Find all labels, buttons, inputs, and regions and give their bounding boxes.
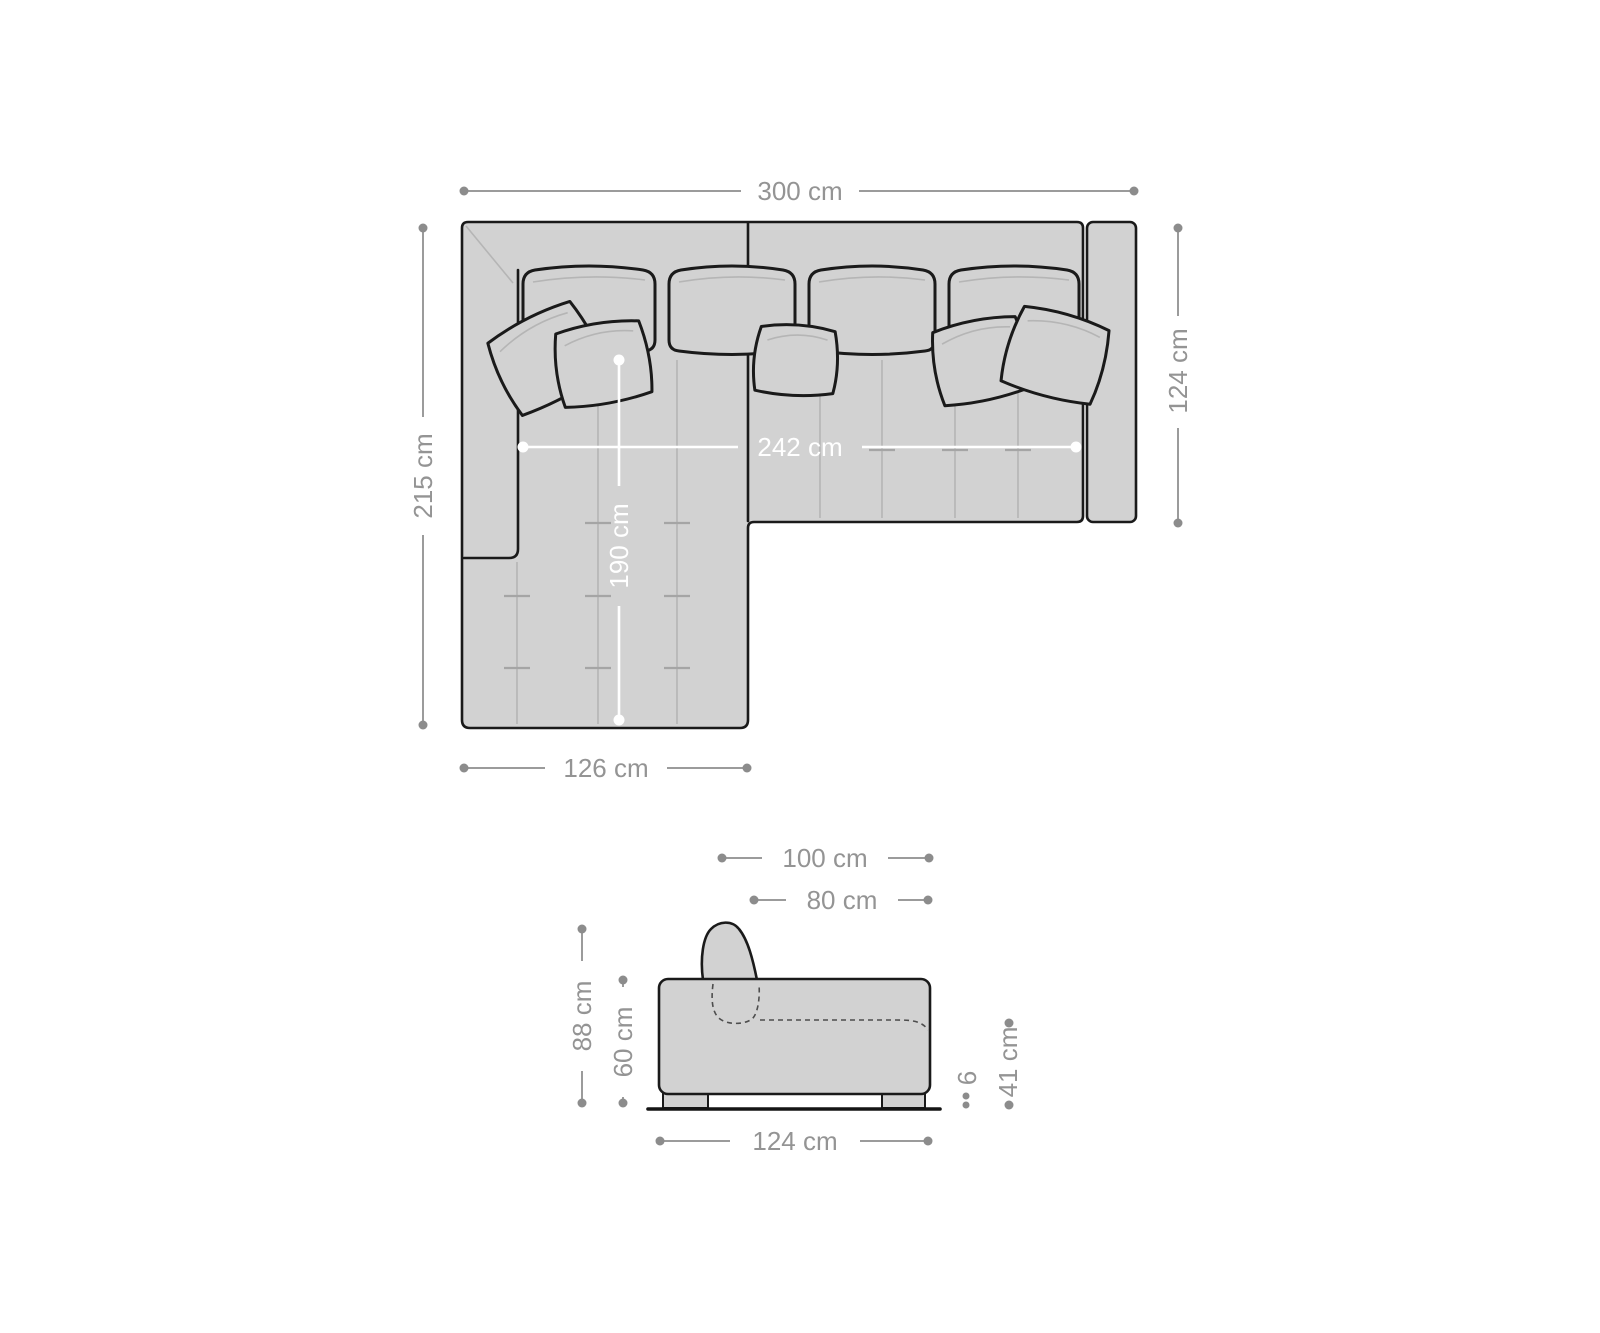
total-height-label: 88 cm	[567, 981, 597, 1052]
dimension-total-height: 88 cm	[567, 925, 597, 1108]
sofa-side-body	[659, 979, 930, 1094]
recamiere-width-label: 126 cm	[563, 753, 648, 783]
dimension-side-total-depth: 100 cm	[718, 843, 934, 873]
dimension-total-width: 300 cm	[460, 176, 1139, 206]
top-view: 242 cm 190 cm 300 cm 215 cm	[408, 176, 1193, 783]
seat-height-label: 41 cm	[993, 1027, 1023, 1098]
base-depth-label: 124 cm	[752, 1126, 837, 1156]
sofa-dimension-drawing: 242 cm 190 cm 300 cm 215 cm	[0, 0, 1600, 1333]
total-depth-label: 215 cm	[408, 433, 438, 518]
pillow	[550, 316, 655, 410]
dimension-base-depth: 124 cm	[656, 1126, 933, 1156]
dimension-recamiere-width: 126 cm	[460, 753, 752, 783]
dimension-foot-height: 6	[952, 1071, 982, 1109]
dimension-seat-height: 41 cm	[993, 1019, 1023, 1110]
backrest-cushion	[702, 923, 757, 980]
pillow	[752, 322, 840, 398]
inner-seat-width-label: 242 cm	[757, 432, 842, 462]
total-width-label: 300 cm	[757, 176, 842, 206]
sofa-depth-label: 124 cm	[1163, 328, 1193, 413]
side-view: 100 cm 80 cm 88 cm 60 cm	[567, 843, 1023, 1156]
seat-depth-label: 80 cm	[807, 885, 878, 915]
foot-height-label: 6	[952, 1071, 982, 1085]
dimension-seat-depth: 80 cm	[750, 885, 933, 915]
side-total-depth-label: 100 cm	[782, 843, 867, 873]
dimension-total-depth: 215 cm	[408, 224, 438, 730]
body-height-label: 60 cm	[608, 1007, 638, 1078]
dimension-body-height: 60 cm	[608, 976, 638, 1108]
dimension-sofa-depth: 124 cm	[1163, 224, 1193, 528]
dimension-diagram: 242 cm 190 cm 300 cm 215 cm	[0, 0, 1600, 1333]
recamiere-seat-depth-label: 190 cm	[604, 503, 634, 588]
